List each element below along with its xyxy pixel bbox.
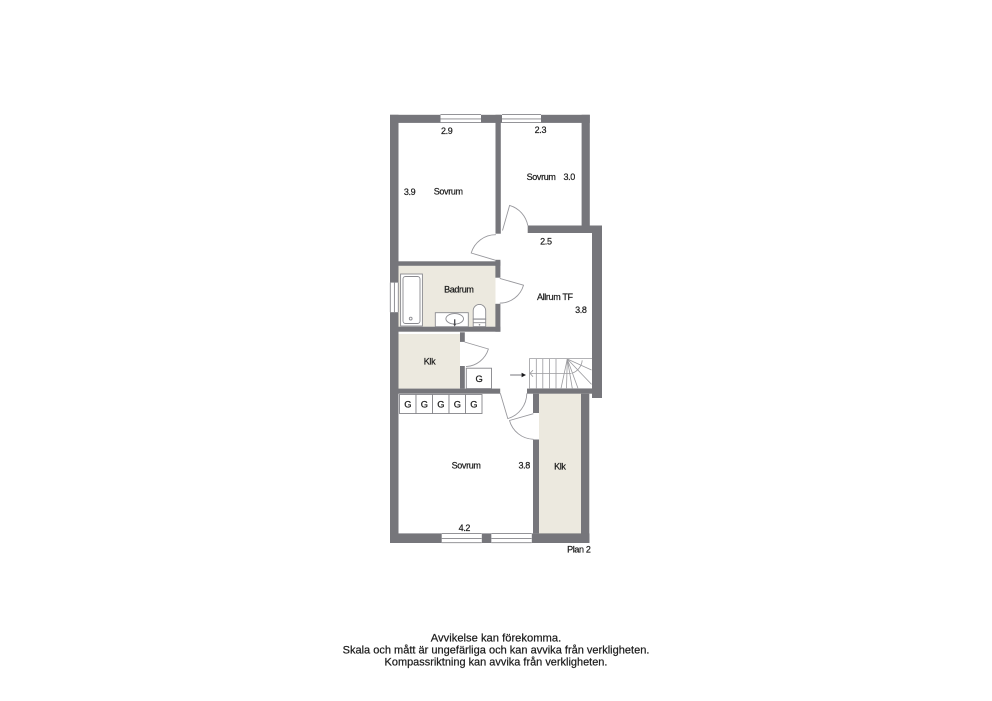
svg-text:2.9: 2.9 — [441, 126, 453, 136]
svg-text:G: G — [437, 399, 444, 410]
svg-text:G: G — [404, 399, 411, 410]
svg-text:G: G — [421, 399, 428, 410]
svg-text:Sovrum: Sovrum — [452, 461, 481, 471]
svg-text:G: G — [454, 399, 461, 410]
svg-text:2.5: 2.5 — [540, 237, 552, 247]
svg-text:Kompassriktning kan avvika frå: Kompassriktning kan avvika från verkligh… — [385, 657, 608, 669]
svg-text:Skala och mått är ungefärliga: Skala och mått är ungefärliga och kan av… — [343, 645, 650, 657]
svg-text:3.8: 3.8 — [575, 305, 587, 315]
svg-text:G: G — [470, 399, 477, 410]
svg-text:Klk: Klk — [424, 356, 436, 366]
svg-text:Avvikelse kan förekomma.: Avvikelse kan förekomma. — [431, 633, 561, 645]
svg-text:3.9: 3.9 — [404, 187, 416, 197]
svg-text:2.3: 2.3 — [535, 125, 547, 135]
svg-text:Plan 2: Plan 2 — [567, 545, 591, 555]
svg-text:Badrum: Badrum — [444, 284, 473, 294]
svg-text:3.8: 3.8 — [518, 461, 530, 471]
svg-text:3.0: 3.0 — [563, 172, 575, 182]
svg-text:Klk: Klk — [554, 462, 566, 472]
svg-text:G: G — [476, 373, 483, 384]
svg-text:4.2: 4.2 — [459, 523, 471, 533]
svg-text:Sovrum: Sovrum — [434, 186, 463, 196]
svg-text:Allrum TF: Allrum TF — [537, 292, 574, 302]
svg-text:Sovrum: Sovrum — [527, 172, 556, 182]
